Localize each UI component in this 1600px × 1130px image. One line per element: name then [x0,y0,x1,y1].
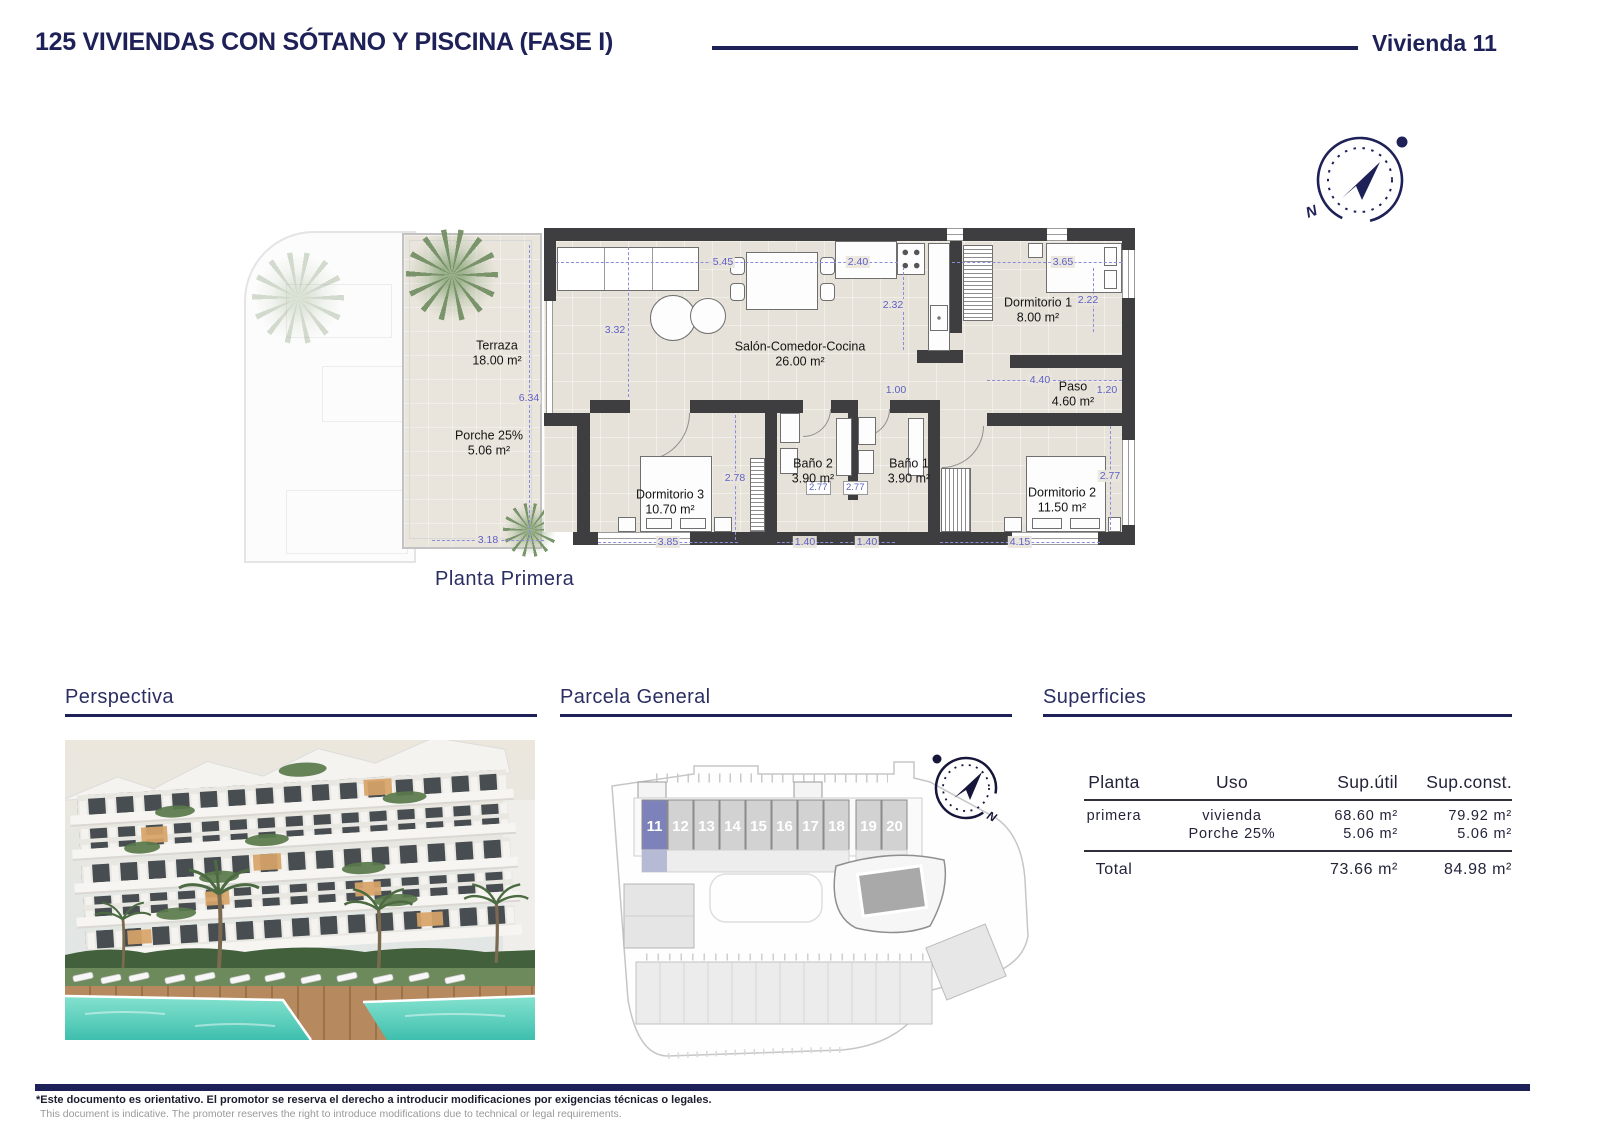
pillow-icon [1070,518,1100,529]
chair-icon [730,283,745,301]
room-label-salon: Salón-Comedor-Cocina26.00 m² [735,339,866,369]
pillow-icon [1104,247,1117,266]
unit-number: 14 [724,818,741,835]
dimension-label: 4.40 [1028,374,1052,386]
table-divider [1084,850,1512,852]
dimension-label: 1.40 [855,536,879,548]
unit-number: 20 [886,818,903,835]
north-compass-icon: N [1298,128,1416,228]
wardrobe-icon [941,468,971,532]
bathroom-sink-icon [858,417,876,445]
room-label-dormitorio3: Dormitorio 310.70 m² [636,487,704,517]
side-table-icon [690,298,726,334]
window [1122,440,1135,525]
document-title: 125 VIVIENDAS CON SÓTANO Y PISCINA (FASE… [35,28,613,57]
disclaimer-es: *Este documento es orientativo. El promo… [36,1094,712,1106]
nightstand-icon [618,517,636,532]
wall [1010,355,1122,368]
dimension-label: 2.22 [1076,294,1100,306]
chair-icon [820,283,835,301]
kitchen-counter [928,243,950,351]
nightstand-icon [1004,517,1022,532]
dimension-line [628,247,629,397]
total-const: 84.98 m² [1398,861,1512,879]
dimension-label: 2.77 [843,481,868,495]
site-plan: 11 12 13 14 15 16 17 18 19 20 [598,738,1038,1063]
table-row: Porche 25% 5.06 m² 5.06 m² [1060,826,1512,842]
section-title-superficies: Superficies [1043,686,1146,709]
pool [363,996,535,1040]
dimension-label: 3.32 [603,324,627,336]
col-header-sup-const: Sup.const. [1398,772,1512,793]
nightstand-icon [1028,243,1043,258]
title-divider [712,46,1358,50]
wardrobe-icon [750,458,765,532]
unit-number: 17 [802,818,819,835]
building-render [65,740,535,1040]
wall [890,400,928,413]
window [1047,228,1067,241]
dimension-label: 1.40 [793,536,817,548]
unit-number: 19 [860,818,877,835]
unit-number: 16 [776,818,793,835]
room-label-dormitorio1: Dormitorio 18.00 m² [1004,295,1072,325]
unit-number: 15 [750,818,767,835]
pillow-icon [680,518,706,529]
col-header-planta: Planta [1060,772,1168,793]
areas-table: Planta Uso Sup.útil Sup.const. primera v… [1060,772,1512,879]
plan-caption: Planta Primera [435,568,574,591]
unit-number: 11 [647,818,663,835]
col-header-uso: Uso [1168,772,1296,793]
window [1122,250,1135,298]
unit-number: 13 [698,818,715,835]
table-divider [1084,799,1512,801]
wall [544,241,556,301]
unit-number: 12 [672,818,689,835]
coffee-table-icon [650,295,696,341]
unit-number: 18 [828,818,845,835]
dimension-label: 2.40 [846,256,870,268]
north-letter: N [1304,202,1321,222]
section-rule [65,714,537,717]
nightstand-icon [714,517,732,532]
wall [987,413,1122,426]
dimension-label: 3.85 [656,536,680,548]
col-header-sup-util: Sup.útil [1296,772,1398,793]
section-title-parcela: Parcela General [560,686,711,709]
shower-icon [836,418,852,476]
wall [831,400,848,413]
window [947,228,963,241]
adjacent-detail [322,366,408,422]
dimension-label: 3.18 [476,534,500,546]
wall [917,350,963,363]
adjacent-detail [286,490,408,554]
chair-icon [820,257,835,275]
dimension-label: 6.34 [517,392,541,404]
pool [65,996,311,1040]
pillow-icon [646,518,672,529]
bathroom-sink-icon [780,413,800,443]
dimension-label: 1.00 [884,384,908,396]
wall [777,400,803,413]
disclaimer-en: This document is indicative. The promote… [40,1108,622,1120]
community-pool [857,866,926,916]
table-total-row: Total 73.66 m² 84.98 m² [1060,861,1512,879]
total-util: 73.66 m² [1296,861,1398,879]
dimension-label: 2.78 [723,472,747,484]
dimension-label: 4.15 [1008,536,1032,548]
dimension-label: 5.45 [711,256,735,268]
dimension-label: 2.77 [1098,470,1122,482]
wardrobe-icon [963,245,993,321]
wall [765,400,777,545]
pillow-icon [1104,270,1117,289]
wall [590,400,630,413]
dimension-line [556,262,833,263]
room-label-porche: Porche 25%5.06 m² [455,428,523,458]
pillow-icon [1032,518,1062,529]
section-rule [560,714,1012,717]
stove-icon [897,243,925,275]
dimension-label: 2.32 [881,299,905,311]
table-header-row: Planta Uso Sup.útil Sup.const. [1060,772,1512,793]
table-row: primera vivienda 68.60 m² 79.92 m² [1060,808,1512,824]
room-label-bano1: Baño 13.90 m² [888,456,930,486]
wall [690,400,770,413]
room-label-paso: Paso4.60 m² [1052,379,1094,409]
room-label-terraza: Terraza18.00 m² [472,338,521,368]
unit-label: Vivienda 11 [1372,30,1497,57]
sink-icon [930,305,948,331]
wall [950,241,962,333]
palm-tree-icon [252,252,344,344]
palm-tree-icon [406,229,498,321]
section-rule [1043,714,1512,717]
wall [577,426,590,532]
plan-sheet: 125 VIVIENDAS CON SÓTANO Y PISCINA (FASE… [0,0,1600,1130]
dimension-line [952,262,1122,263]
terrace-door [546,301,553,413]
total-label: Total [1060,861,1168,879]
dimension-label: 1.20 [1095,384,1119,396]
wall [544,413,590,426]
footer-rule [35,1084,1530,1091]
dimension-label: 3.65 [1051,256,1075,268]
room-label-bano2: Baño 23.90 m² [792,456,834,486]
dining-table-icon [746,252,818,310]
toilet-icon [858,450,874,474]
room-label-dormitorio2: Dormitorio 211.50 m² [1028,485,1096,515]
section-title-perspectiva: Perspectiva [65,686,174,709]
